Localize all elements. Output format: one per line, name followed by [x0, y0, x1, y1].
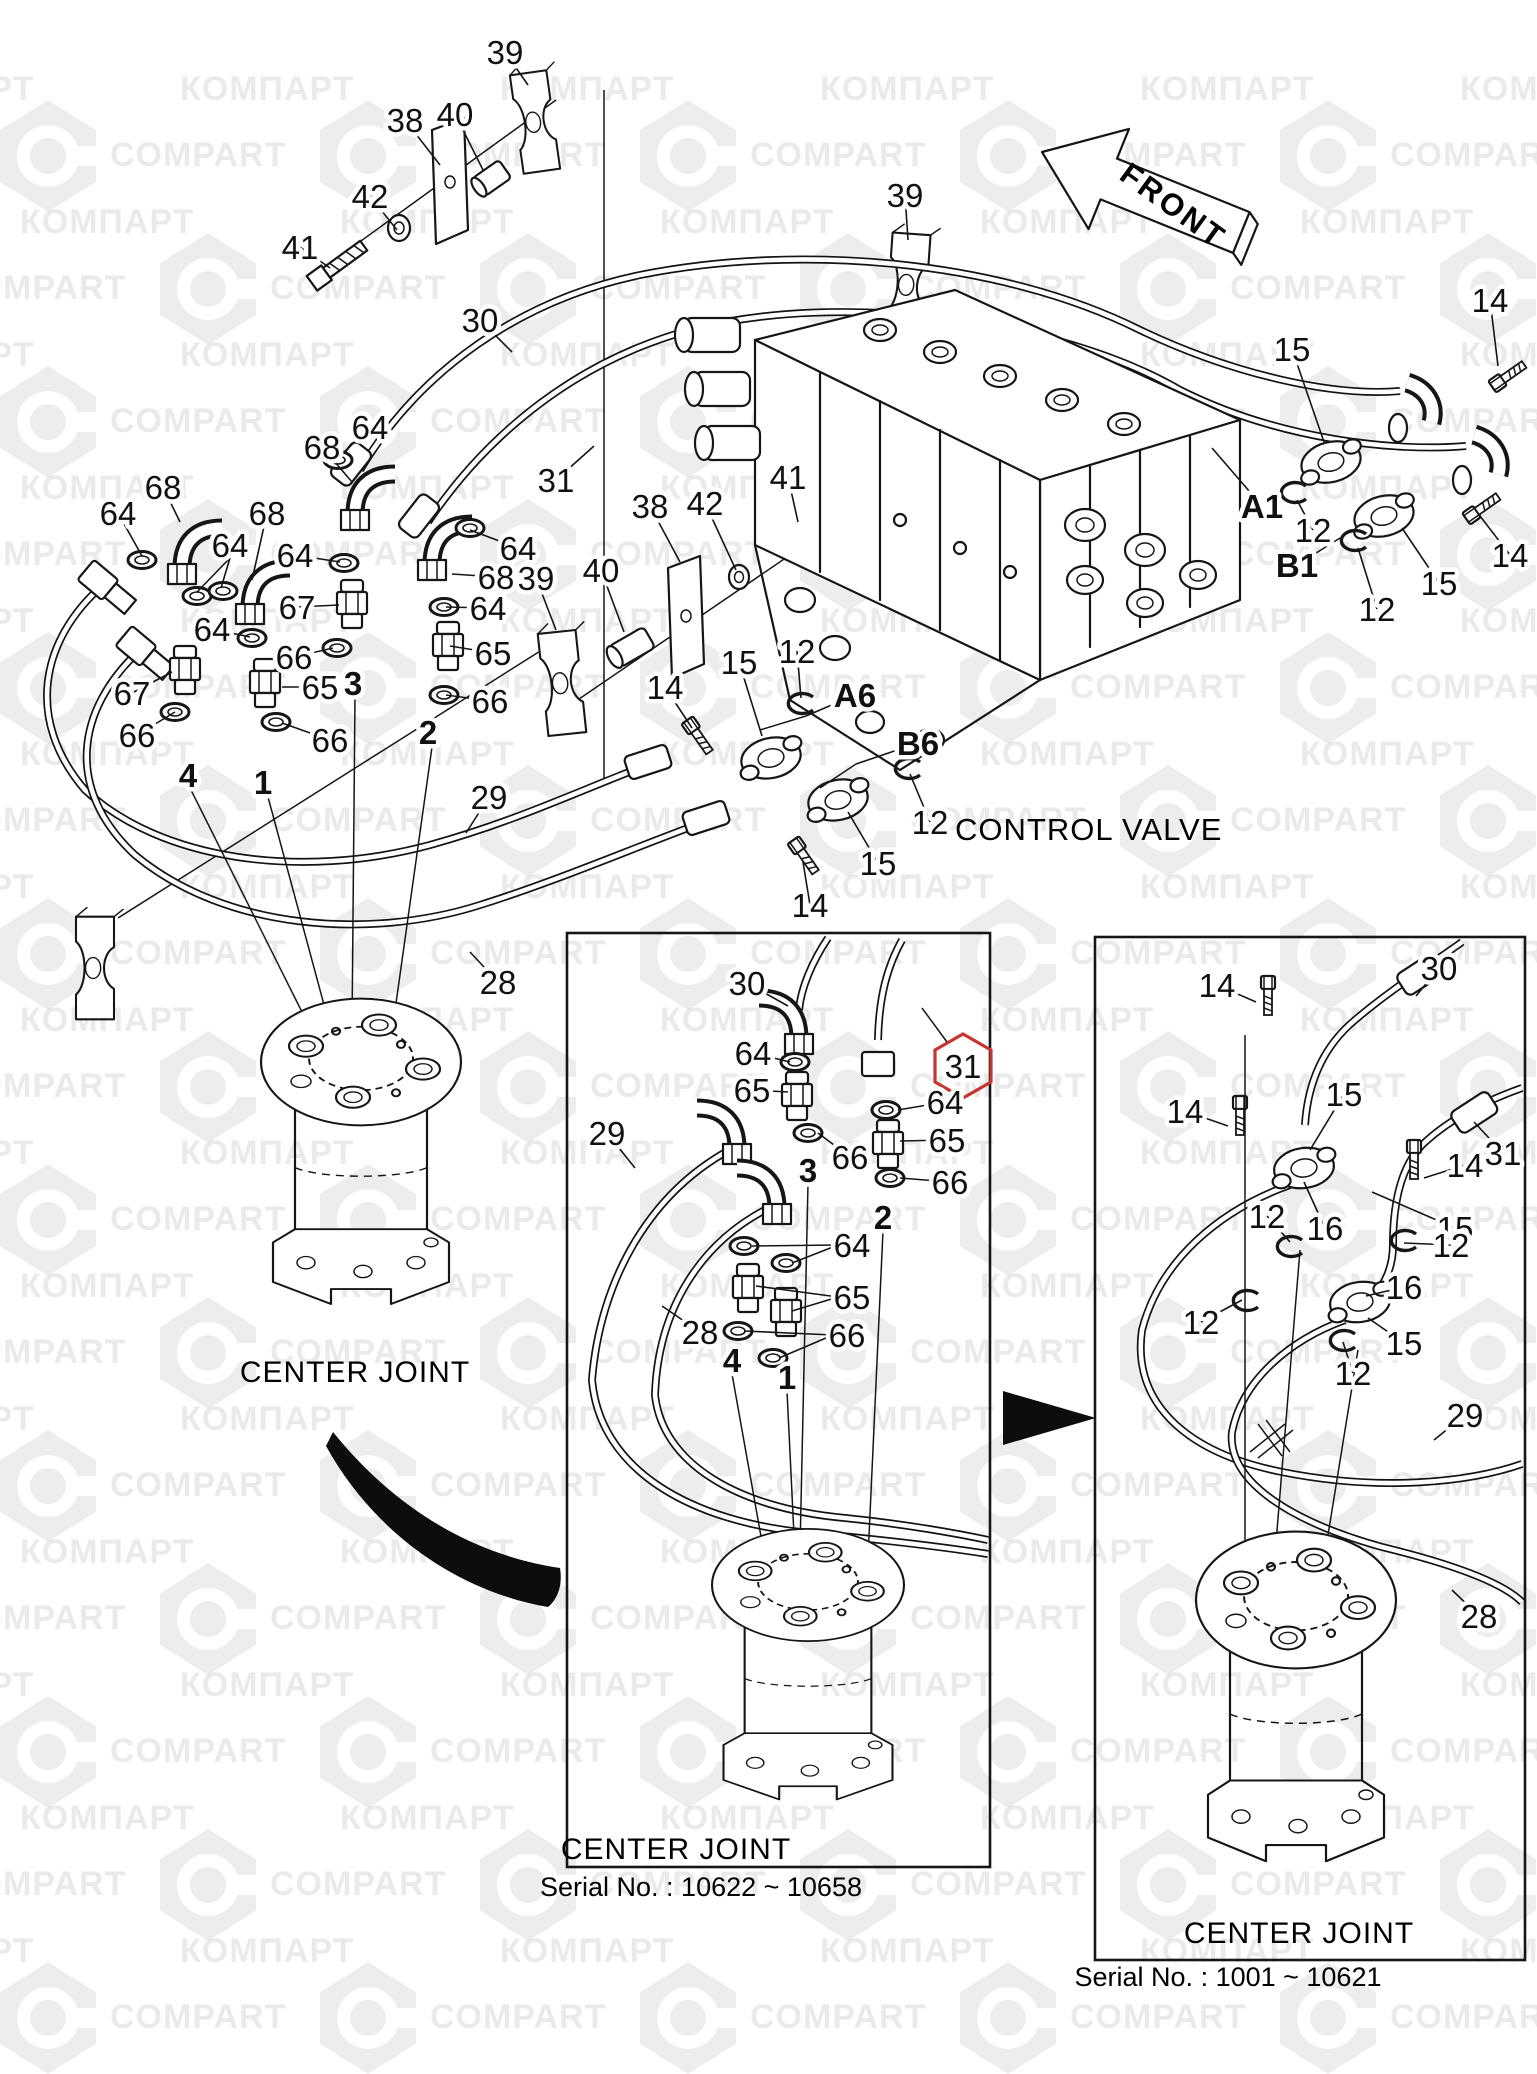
watermark-text: COMPART [1070, 1998, 1246, 2037]
part-label-28: 28 [1461, 1598, 1498, 1635]
part-label-1: 1 [254, 764, 272, 801]
part-label-15: 15 [860, 845, 897, 882]
part-label-16: 16 [1307, 1210, 1344, 1247]
part-label-2: 2 [419, 714, 437, 751]
part-label-42: 42 [352, 178, 389, 215]
part-label-65: 65 [475, 635, 512, 672]
triangle-arrow [1003, 1391, 1096, 1445]
part-label-41: 41 [282, 229, 319, 266]
part-label-3: 3 [344, 665, 362, 702]
part-label-64: 64 [470, 590, 507, 627]
part-label-40: 40 [583, 552, 620, 589]
part-label-30: 30 [1421, 950, 1458, 987]
part-label-29: 29 [589, 1115, 626, 1152]
part-label-64: 64 [927, 1084, 964, 1121]
part-label-39: 39 [518, 560, 555, 597]
center-joint-label-right: CENTER JOINT [1184, 1917, 1414, 1950]
part-label-30: 30 [729, 965, 766, 1002]
part-label-15: 15 [1386, 1325, 1423, 1362]
part-label-14: 14 [1472, 282, 1509, 319]
part-label-12: 12 [1335, 1355, 1372, 1392]
part-label-2: 2 [874, 1199, 892, 1236]
part-label-A1: A1 [1241, 488, 1283, 525]
part-label-B1: B1 [1276, 547, 1318, 584]
part-label-64: 64 [834, 1227, 871, 1264]
part-label-16: 16 [1386, 1269, 1423, 1306]
part-label-66: 66 [472, 683, 509, 720]
part-label-28: 28 [682, 1314, 719, 1351]
part-label-1: 1 [778, 1359, 796, 1396]
serial-range-mid: Serial No. : 10622 ~ 10658 [540, 1872, 862, 1902]
part-label-4: 4 [179, 757, 198, 794]
serial-range-right: Serial No. : 1001 ~ 10621 [1075, 1962, 1382, 1992]
control-valve-label: CONTROL VALVE [955, 812, 1222, 847]
part-label-B6: B6 [897, 725, 939, 762]
part-label-15: 15 [1326, 1076, 1363, 1113]
part-label-68: 68 [304, 429, 341, 466]
part-label-42: 42 [687, 485, 724, 522]
part-label-38: 38 [387, 102, 424, 139]
part-label-15: 15 [721, 644, 758, 681]
part-label-A6: A6 [834, 677, 876, 714]
part-label-68: 68 [145, 469, 182, 506]
part-label-40: 40 [437, 96, 474, 133]
part-label-14: 14 [647, 669, 684, 706]
part-label-67: 67 [279, 589, 316, 626]
part-label-15: 15 [1274, 331, 1311, 368]
panel-mid [567, 933, 991, 1867]
part-label-38: 38 [632, 488, 669, 525]
part-label-31: 31 [538, 462, 575, 499]
part-label-66: 66 [832, 1139, 869, 1176]
part-label-29: 29 [1447, 1397, 1484, 1434]
leader-line [792, 1245, 838, 1263]
part-label-12: 12 [779, 633, 816, 670]
part-label-12: 12 [912, 804, 949, 841]
part-label-65: 65 [734, 1072, 771, 1109]
part-label-41: 41 [770, 459, 807, 496]
part-label-12: 12 [1295, 512, 1332, 549]
part-label-66: 66 [932, 1164, 969, 1201]
center-joint-main [261, 999, 461, 1304]
diagram-canvas: FRONT [0, 0, 1537, 2000]
parts-diagram-page: { "watermark": { "text_a": "КОМПАРТ", "t… [0, 0, 1537, 2000]
part-label-4: 4 [723, 1342, 742, 1379]
part-label-3: 3 [799, 1152, 817, 1189]
part-label-14: 14 [792, 887, 829, 924]
part-label-39: 39 [487, 34, 524, 71]
part-label-68: 68 [249, 495, 286, 532]
hose-core [655, 1205, 988, 1540]
swoosh-arrow [326, 1432, 561, 1607]
clamp-39-left [76, 907, 124, 1019]
part-label-12: 12 [1433, 1227, 1470, 1264]
part-label-64: 64 [194, 611, 231, 648]
part-label-64: 64 [352, 409, 389, 446]
part-label-29: 29 [471, 779, 508, 816]
leader-line [752, 1245, 838, 1246]
watermark-text: COMPART [110, 1998, 286, 2037]
center-joint-label-mid: CENTER JOINT [561, 1833, 791, 1866]
part-label-14: 14 [1492, 537, 1529, 574]
part-label-14: 14 [1199, 967, 1236, 1004]
front-arrow: FRONT [1022, 102, 1273, 287]
part-label-65: 65 [302, 669, 339, 706]
part-label-64: 64 [212, 527, 249, 564]
part-label-67: 67 [114, 675, 151, 712]
watermark-text: COMPART [750, 1998, 926, 2037]
part-label-66: 66 [312, 722, 349, 759]
clamp-assembly-top [307, 60, 570, 291]
part-label-64: 64 [735, 1035, 772, 1072]
part-label-15: 15 [1421, 565, 1458, 602]
part-label-31: 31 [1485, 1135, 1522, 1172]
part-label-31: 31 [945, 1048, 982, 1085]
hose-hash-mark [1250, 1420, 1293, 1458]
part-label-14: 14 [1167, 1093, 1204, 1130]
center-joint-label-main: CENTER JOINT [240, 1356, 470, 1389]
leader-line [779, 1335, 833, 1358]
part-label-14: 14 [1447, 1147, 1484, 1184]
part-label-12: 12 [1183, 1304, 1220, 1341]
part-label-65: 65 [929, 1122, 966, 1159]
part-label-12: 12 [1249, 1198, 1286, 1235]
part-label-12: 12 [1359, 591, 1396, 628]
part-label-28: 28 [480, 964, 517, 1001]
part-label-66: 66 [119, 717, 156, 754]
part-label-30: 30 [462, 302, 499, 339]
control-valve [675, 290, 1240, 770]
panel-right [1095, 937, 1525, 1960]
watermark-text: COMPART [1390, 1998, 1537, 2037]
watermark-text: COMPART [430, 1998, 606, 2037]
part-label-66: 66 [829, 1317, 866, 1354]
part-label-64: 64 [100, 495, 137, 532]
part-label-65: 65 [834, 1279, 871, 1316]
part-label-39: 39 [887, 177, 924, 214]
part-label-64: 64 [277, 537, 314, 574]
